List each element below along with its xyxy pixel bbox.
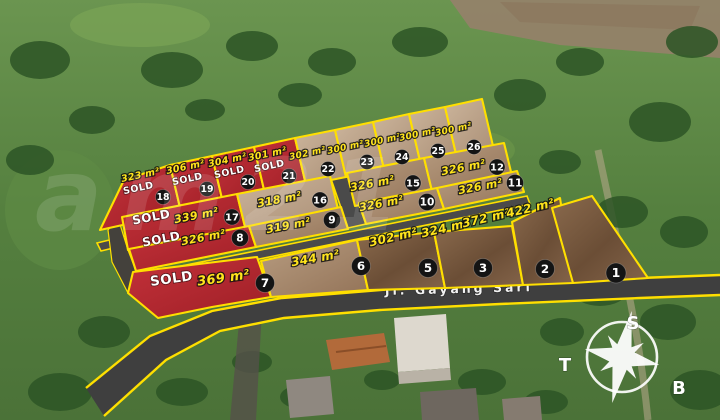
plot-number-7: 7 bbox=[261, 276, 269, 290]
plot-number-5: 5 bbox=[424, 261, 432, 275]
plot-number-12: 12 bbox=[490, 162, 504, 173]
plot-number-25: 25 bbox=[431, 146, 444, 157]
plot-number-2: 2 bbox=[541, 262, 549, 276]
aerial-plot-map: Jl. Gayang Sari 323 m²SOLD18306 m²SOLD19… bbox=[0, 0, 720, 420]
compass-letter-east: T bbox=[559, 355, 572, 376]
compass-letter-south: S bbox=[627, 313, 640, 334]
plot-number-1: 1 bbox=[612, 265, 621, 280]
plot-number-11: 11 bbox=[508, 177, 523, 190]
plot-number-6: 6 bbox=[357, 259, 365, 273]
plot-number-3: 3 bbox=[479, 261, 487, 275]
plot-number-26: 26 bbox=[467, 142, 481, 153]
plot-number-10: 10 bbox=[420, 196, 435, 209]
compass-letter-west: B bbox=[672, 378, 686, 399]
plot-3 bbox=[434, 226, 523, 288]
watermark-text: am21 bbox=[35, 137, 418, 254]
